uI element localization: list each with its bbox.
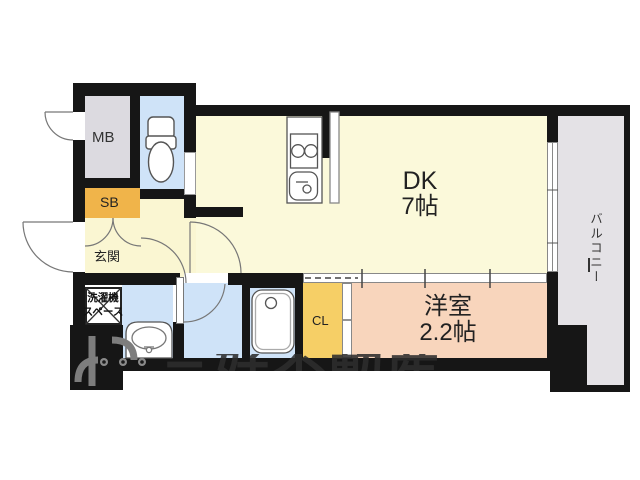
label-genkan: 玄関 [94,246,120,265]
label-washer-line1: 洗濯機 [82,292,124,306]
partition-marks [305,269,490,288]
door-arcs [23,112,241,322]
kitchen-icon [287,112,339,203]
watermark-text: 三好不動産 [158,354,546,371]
label-western-name: 洋室 [392,294,504,320]
toilet-icon [146,117,176,182]
label-dk-name: DK [385,168,455,194]
label-western-size: 2.2帖 [392,320,504,346]
label-washer-line2: スペース [82,306,124,320]
label-washer-space: 洗濯機 スペース [82,292,124,319]
shoebox-arc-left [85,218,113,246]
label-dk: DK 7帖 [385,168,455,219]
label-dk-size: 7帖 [385,194,455,219]
hall-dk-door-arc [190,222,241,273]
bathtub-icon [252,290,294,353]
genkan-step-arc [141,238,186,283]
shoebox-arc-right [113,218,141,246]
label-mb: MB [92,129,115,146]
label-cl: CL [312,313,329,328]
plan-linework [0,0,640,480]
watermark-logo-dots [100,358,146,366]
dressing-door-arc [184,284,225,322]
label-western-room: 洋室 2.2帖 [392,294,504,347]
mb-door-arc [45,112,73,140]
floor-plan: MB SB 玄関 洗濯機 スペース DK 7帖 CL 洋室 2.2帖 バルコニー… [0,0,640,480]
label-sb: SB [100,194,119,210]
label-balcony: バルコニー [586,212,605,285]
entrance-door-arc [23,222,73,272]
